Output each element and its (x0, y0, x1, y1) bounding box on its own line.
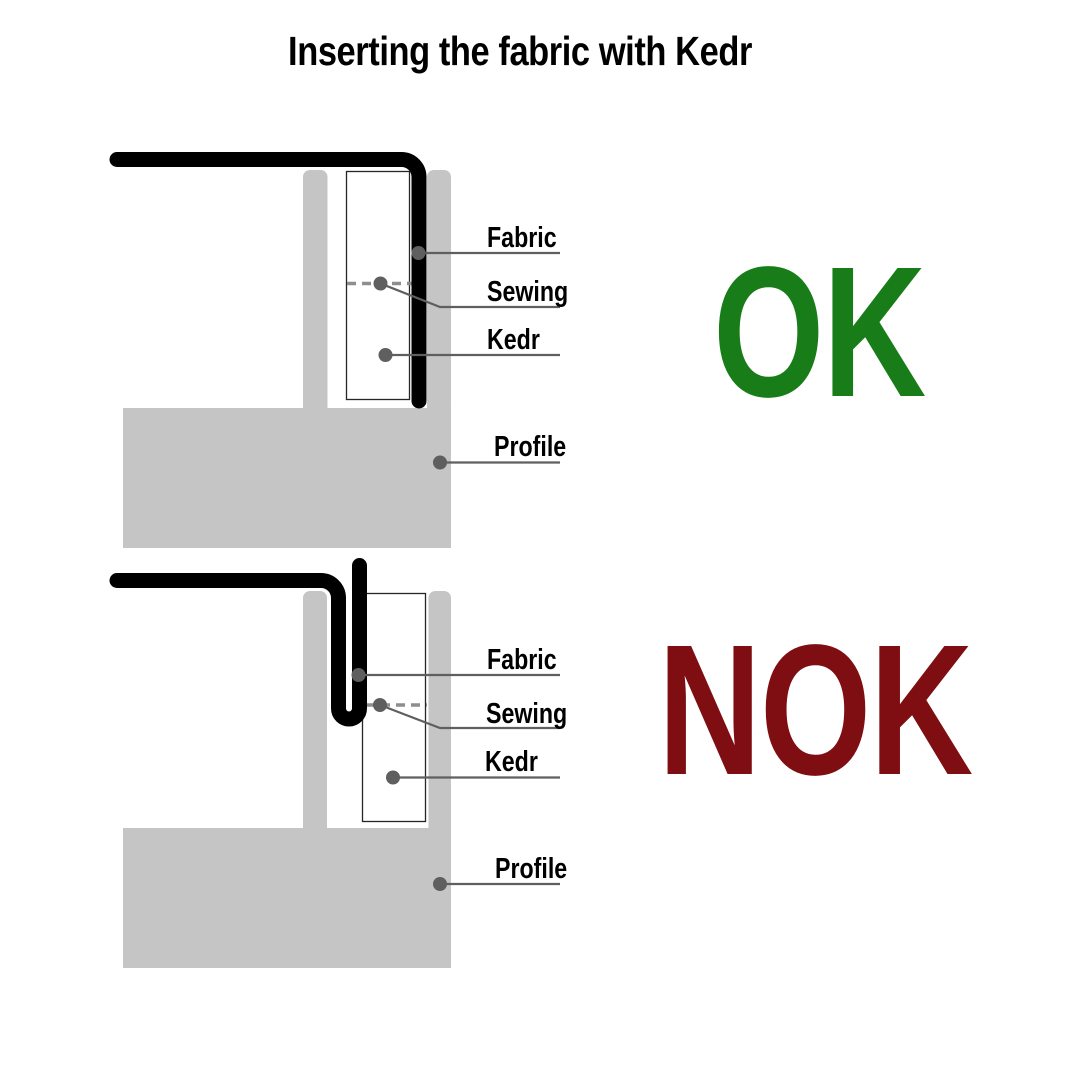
sewing-leader-dot (373, 698, 387, 712)
profile-leader-dot (433, 456, 447, 470)
sewing-leader-dot (374, 277, 388, 291)
kedr-leader-dot (379, 348, 393, 362)
fabric-leader-dot (412, 246, 426, 260)
label-kedr: Kedr (485, 748, 538, 777)
kedr-rect (363, 594, 426, 822)
kedr-leader-dot (386, 771, 400, 785)
label-fabric: Fabric (487, 646, 557, 675)
label-sewing: Sewing (487, 278, 568, 307)
profile-base (123, 828, 451, 968)
verdict-nok: NOK (658, 618, 972, 804)
label-kedr: Kedr (487, 326, 540, 355)
label-sewing: Sewing (486, 700, 567, 729)
label-profile: Profile (495, 855, 567, 884)
label-fabric: Fabric (487, 224, 557, 253)
profile-right-bar (429, 591, 452, 835)
verdict-ok: OK (713, 240, 925, 426)
profile-left-bar (303, 591, 327, 835)
infographic-canvas: Inserting the fabric with Kedr (0, 0, 1080, 1080)
profile-right-bar (427, 170, 451, 414)
label-profile: Profile (494, 433, 566, 462)
fabric-leader-dot (352, 668, 366, 682)
diagram-shapes-layer (0, 0, 1080, 1080)
profile-leader-dot (433, 877, 447, 891)
profile-left-bar (303, 170, 328, 414)
profile-base (123, 408, 451, 548)
